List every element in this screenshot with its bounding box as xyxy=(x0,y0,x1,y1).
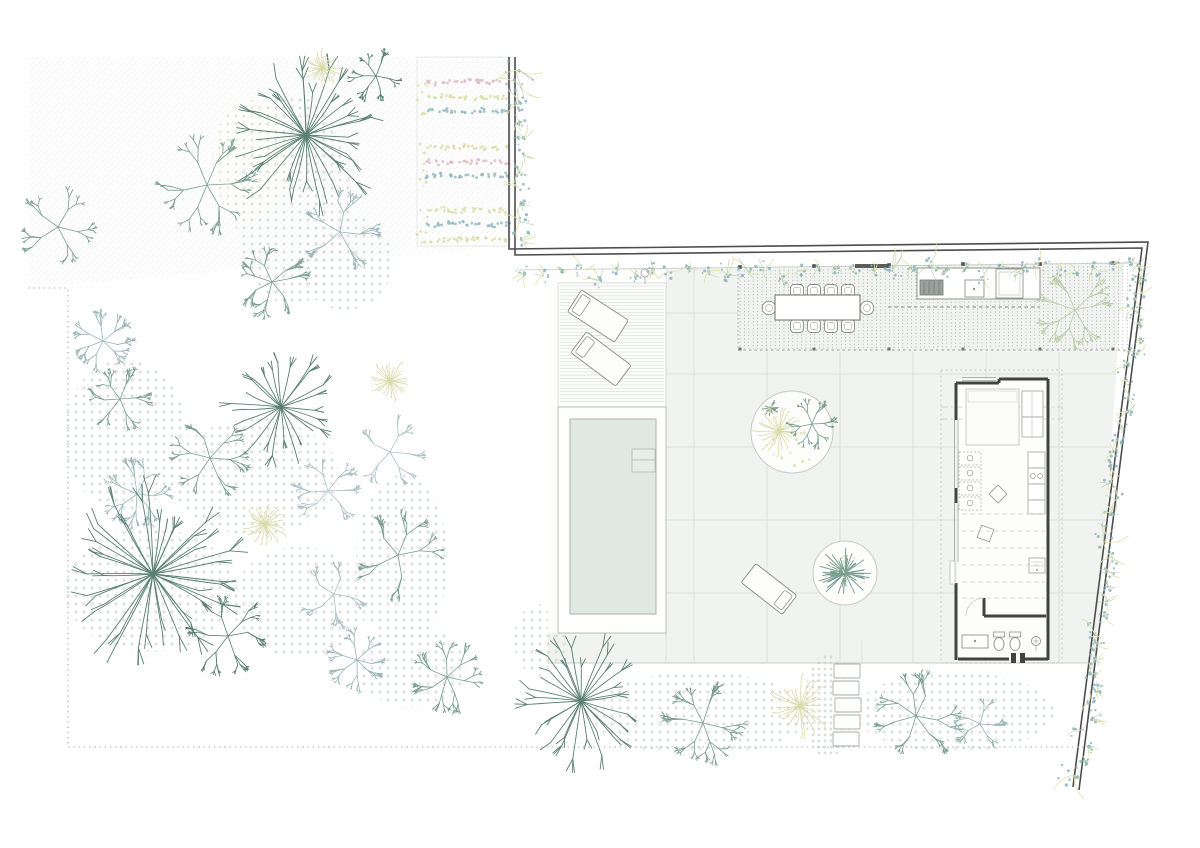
site-plan-canvas xyxy=(0,0,1200,848)
appliance-knob xyxy=(1036,569,1038,571)
flower-bed xyxy=(417,57,510,246)
grill xyxy=(920,280,943,295)
pool-steps xyxy=(632,449,655,472)
washbasin-drain xyxy=(974,640,976,642)
toilet xyxy=(994,632,1005,651)
site-plan-drawing xyxy=(0,0,1200,848)
stepping-stones xyxy=(833,664,861,746)
pool-water xyxy=(570,419,656,614)
bed xyxy=(966,389,1019,445)
kitchen-wall-units xyxy=(1028,452,1045,514)
kitchen-module xyxy=(996,269,1023,298)
wardrobe xyxy=(1022,391,1043,437)
sink-drain xyxy=(973,288,975,290)
bidet xyxy=(1010,632,1021,651)
generated-plan-elements xyxy=(21,48,1152,799)
entry-threshold xyxy=(950,561,955,584)
